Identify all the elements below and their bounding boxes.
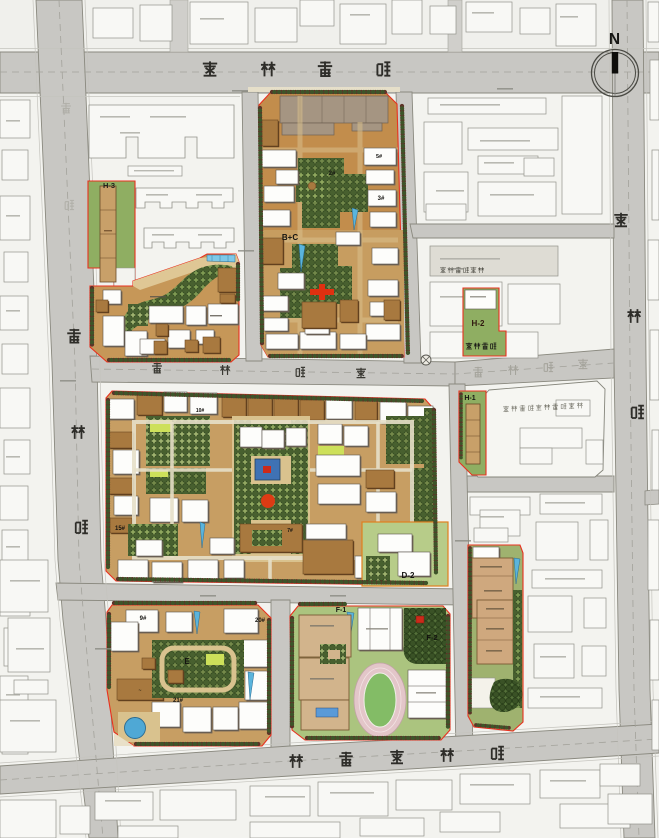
svg-text:20#: 20# bbox=[255, 618, 266, 624]
svg-text:2#: 2# bbox=[329, 171, 336, 177]
svg-text:N: N bbox=[609, 31, 620, 48]
svg-text:D-2: D-2 bbox=[402, 571, 415, 580]
svg-text:~: ~ bbox=[139, 688, 142, 694]
svg-text:E: E bbox=[184, 657, 190, 666]
svg-text:F-2: F-2 bbox=[426, 633, 437, 642]
svg-text:21#: 21# bbox=[173, 698, 184, 704]
svg-text:F-1: F-1 bbox=[336, 607, 347, 614]
svg-text:3#: 3# bbox=[378, 196, 385, 202]
svg-text:H-3: H-3 bbox=[103, 181, 115, 190]
svg-text:H-1: H-1 bbox=[464, 395, 475, 402]
svg-text:B+C: B+C bbox=[282, 233, 298, 242]
svg-text:5#: 5# bbox=[376, 154, 382, 160]
svg-text:7#: 7# bbox=[287, 528, 293, 534]
svg-text:H-2: H-2 bbox=[472, 319, 485, 328]
svg-text:10#: 10# bbox=[196, 408, 205, 414]
svg-text:9#: 9# bbox=[140, 616, 147, 622]
svg-text:15#: 15# bbox=[115, 526, 126, 532]
